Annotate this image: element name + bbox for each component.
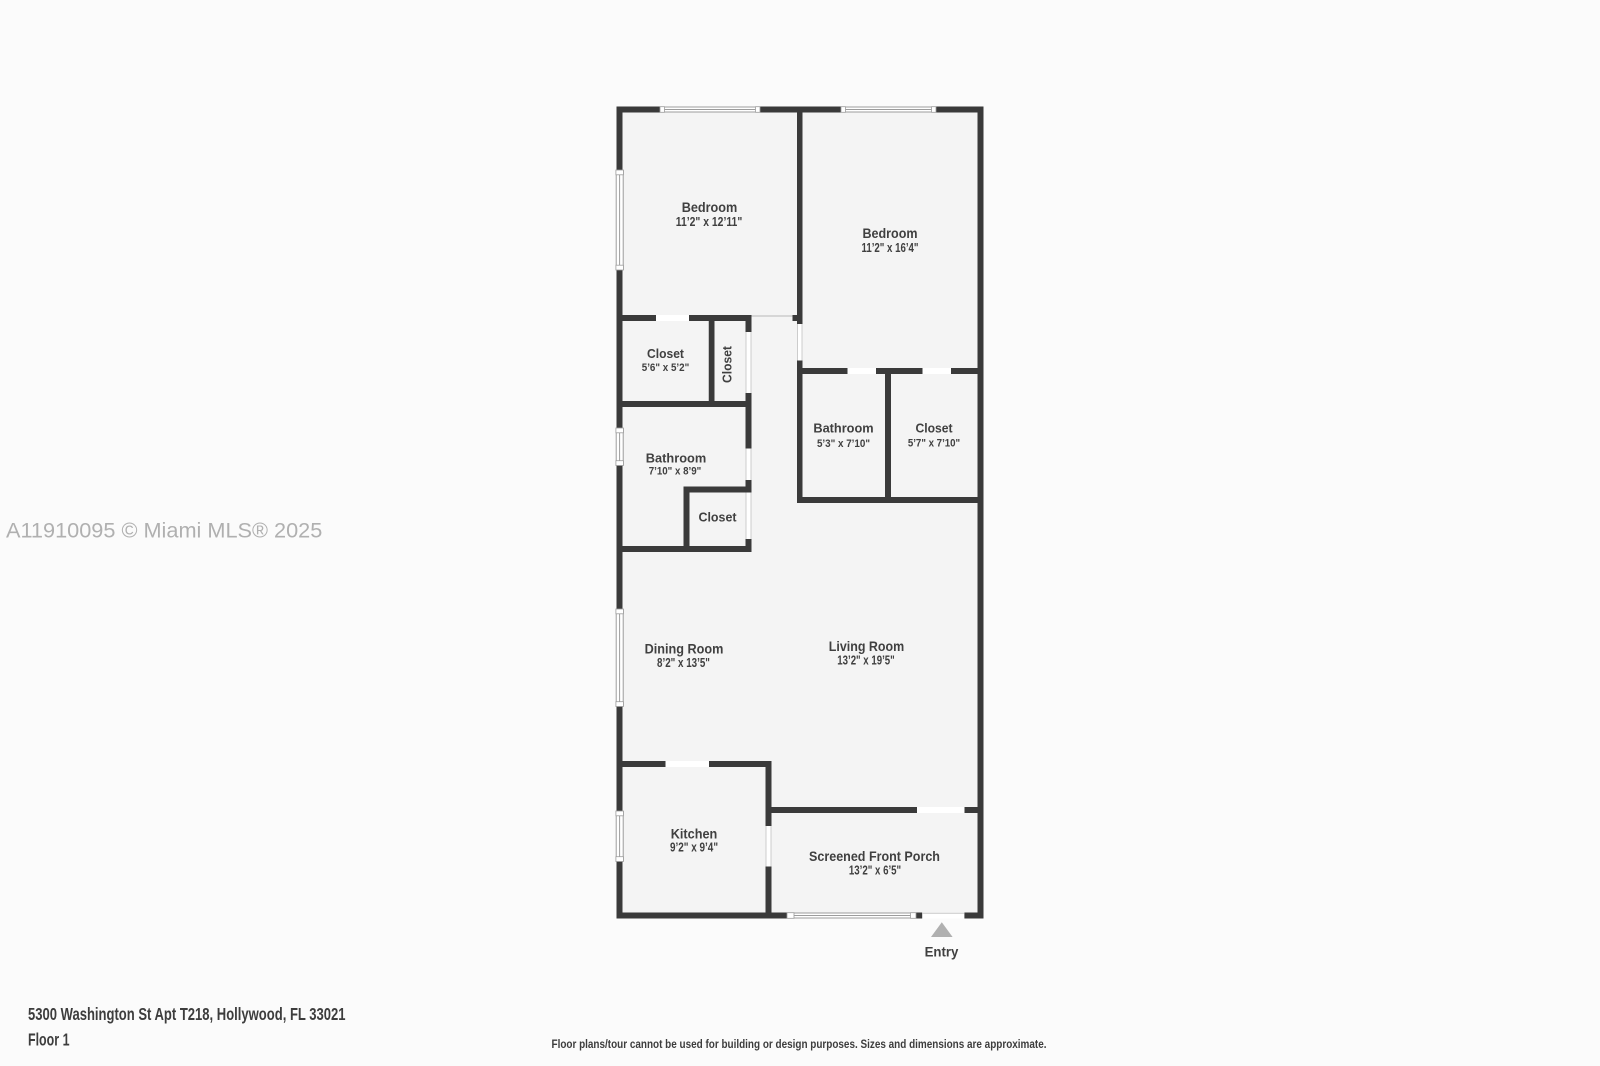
svg-text:Dining Room: Dining Room: [645, 641, 724, 657]
svg-text:Floor 1: Floor 1: [28, 1030, 70, 1050]
svg-text:Closet: Closet: [915, 422, 953, 436]
svg-text:11’2" x 12’11": 11’2" x 12’11": [676, 215, 743, 229]
svg-text:5’7" x 7’10": 5’7" x 7’10": [908, 438, 960, 450]
svg-text:Bedroom: Bedroom: [863, 225, 918, 241]
svg-text:Bedroom: Bedroom: [682, 199, 738, 215]
svg-text:Floor plans/tour cannot be use: Floor plans/tour cannot be used for buil…: [552, 1039, 1047, 1051]
svg-text:Bathroom: Bathroom: [646, 452, 706, 466]
svg-text:7’10" x 8’9": 7’10" x 8’9": [649, 466, 702, 478]
svg-text:Closet: Closet: [647, 347, 685, 361]
svg-text:A11910095 © Miami MLS® 2025: A11910095 © Miami MLS® 2025: [6, 520, 322, 543]
svg-text:5’6" x 5’2": 5’6" x 5’2": [642, 362, 690, 374]
svg-text:5’3" x 7’10": 5’3" x 7’10": [817, 438, 870, 450]
svg-text:11’2" x 16’4": 11’2" x 16’4": [862, 241, 919, 255]
svg-text:Screened Front Porch: Screened Front Porch: [809, 848, 940, 864]
svg-text:Living Room: Living Room: [829, 638, 904, 654]
svg-text:Closet: Closet: [699, 511, 738, 525]
svg-text:Kitchen: Kitchen: [671, 826, 718, 842]
svg-text:Closet: Closet: [721, 345, 735, 383]
svg-text:9’2" x 9’4": 9’2" x 9’4": [670, 841, 718, 855]
svg-text:8’2" x 13’5": 8’2" x 13’5": [657, 656, 710, 670]
svg-text:5300 Washington St Apt T218, H: 5300 Washington St Apt T218, Hollywood, …: [28, 1004, 346, 1024]
svg-text:Bathroom: Bathroom: [813, 422, 873, 436]
svg-text:13’2" x 19’5": 13’2" x 19’5": [837, 654, 894, 668]
svg-text:13’2" x 6’5": 13’2" x 6’5": [849, 864, 901, 878]
svg-text:Entry: Entry: [925, 944, 959, 960]
